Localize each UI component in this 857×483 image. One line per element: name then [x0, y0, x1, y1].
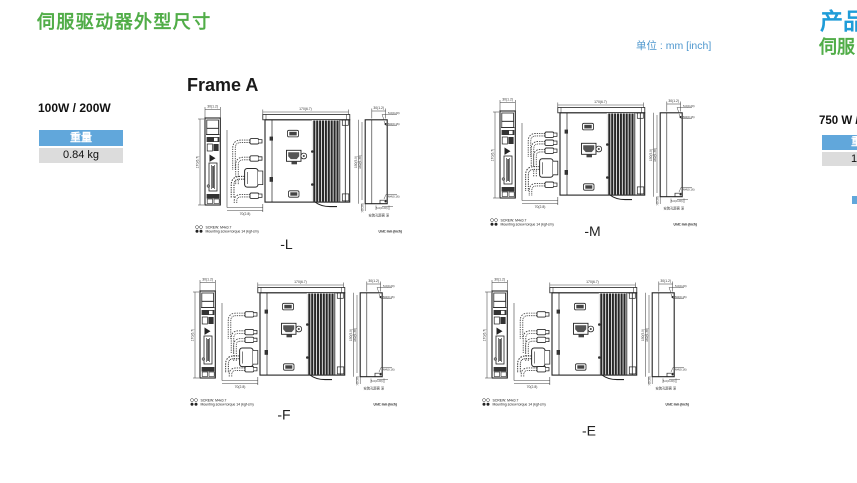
svg-text:-M: -M	[584, 223, 600, 239]
svg-text:-F: -F	[277, 407, 290, 423]
svg-text:-E: -E	[582, 423, 596, 439]
svg-text:-L: -L	[280, 236, 293, 252]
